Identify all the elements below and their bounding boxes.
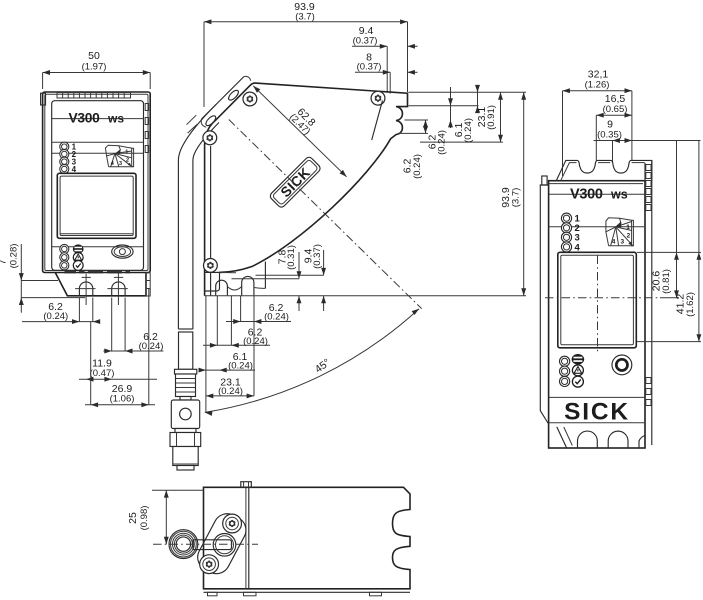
svg-text:V300: V300 xyxy=(69,111,101,126)
svg-text:(0.31): (0.31) xyxy=(286,245,297,270)
svg-text:3: 3 xyxy=(621,239,625,246)
svg-text:7: 7 xyxy=(0,259,9,265)
svg-text:(0.24): (0.24) xyxy=(43,311,68,322)
svg-text:(0.91): (0.91) xyxy=(486,105,497,130)
svg-text:V300: V300 xyxy=(570,187,603,203)
svg-text:1: 1 xyxy=(125,150,128,156)
svg-text:(0.24): (0.24) xyxy=(139,341,164,352)
svg-text:2: 2 xyxy=(126,158,129,164)
svg-text:25: 25 xyxy=(127,512,139,524)
svg-text:(0.37): (0.37) xyxy=(357,62,382,73)
svg-text:(1.62): (1.62) xyxy=(685,292,696,317)
svg-text:(0.24): (0.24) xyxy=(218,386,243,397)
svg-text:(0.98): (0.98) xyxy=(139,506,150,531)
svg-text:3: 3 xyxy=(119,161,122,167)
svg-text:(0.24): (0.24) xyxy=(463,118,474,143)
svg-text:(3.7): (3.7) xyxy=(510,188,521,208)
svg-text:(1.06): (1.06) xyxy=(110,394,135,405)
svg-text:(0.37): (0.37) xyxy=(353,36,378,47)
svg-text:50: 50 xyxy=(88,50,100,62)
svg-text:4: 4 xyxy=(612,239,616,246)
svg-text:SICK: SICK xyxy=(564,399,630,426)
svg-text:(0.37): (0.37) xyxy=(312,244,323,269)
svg-text:(0.24): (0.24) xyxy=(412,154,423,179)
svg-text:(0.28): (0.28) xyxy=(9,244,20,269)
svg-text:(0.81): (0.81) xyxy=(661,269,672,294)
svg-text:(0.24): (0.24) xyxy=(264,311,289,322)
svg-text:ws: ws xyxy=(107,112,124,126)
svg-text:1: 1 xyxy=(626,224,630,231)
svg-text:(1.26): (1.26) xyxy=(585,80,610,91)
svg-text:(0.24): (0.24) xyxy=(437,130,448,155)
svg-text:(1.97): (1.97) xyxy=(82,62,107,73)
svg-text:2: 2 xyxy=(627,232,631,239)
svg-text:(0.65): (0.65) xyxy=(603,104,628,115)
svg-text:ws: ws xyxy=(610,188,628,202)
svg-text:(3.7): (3.7) xyxy=(295,12,315,23)
